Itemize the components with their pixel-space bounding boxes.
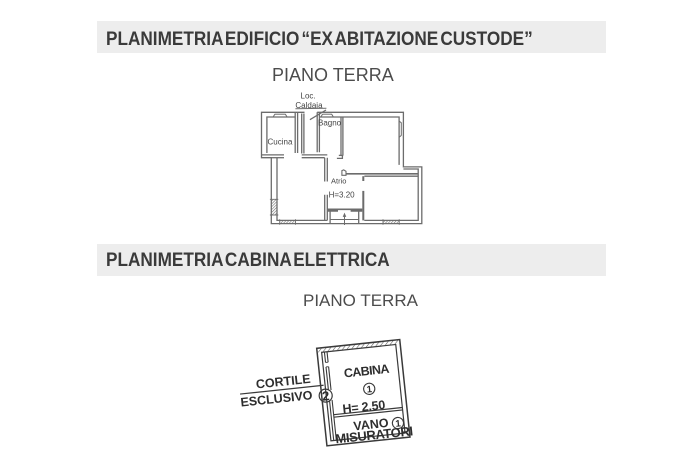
svg-text:CABINA: CABINA bbox=[343, 362, 390, 381]
svg-text:Bagno: Bagno bbox=[318, 119, 342, 128]
svg-text:MISURATORI: MISURATORI bbox=[335, 423, 414, 446]
svg-text:H= 2.50: H= 2.50 bbox=[342, 398, 386, 416]
svg-text:Loc.: Loc. bbox=[301, 92, 316, 101]
svg-text:2: 2 bbox=[321, 388, 330, 404]
svg-text:ESCLUSIVO: ESCLUSIVO bbox=[240, 388, 314, 410]
svg-text:Atrio: Atrio bbox=[331, 176, 346, 185]
svg-text:Caldaia: Caldaia bbox=[295, 101, 323, 110]
svg-text:Cucina: Cucina bbox=[268, 137, 293, 146]
svg-text:H=3.20: H=3.20 bbox=[329, 190, 356, 199]
svg-text:1: 1 bbox=[366, 384, 373, 396]
